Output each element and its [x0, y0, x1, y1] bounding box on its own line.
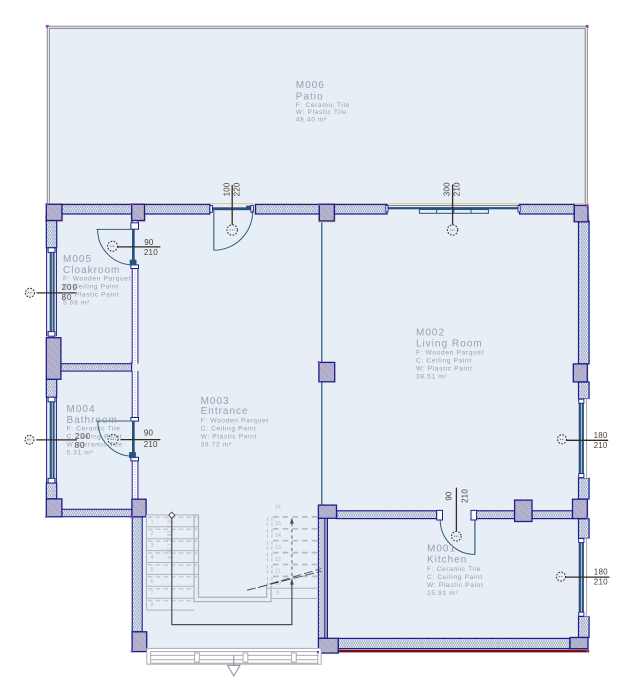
- svg-text:F: Wooden Parquet: F: Wooden Parquet: [416, 349, 484, 356]
- svg-text:M004: M004: [67, 404, 96, 415]
- svg-text:90: 90: [445, 491, 454, 501]
- svg-text:C: Ceiling Paint: C: Ceiling Paint: [427, 574, 483, 581]
- svg-text:11: 11: [275, 569, 281, 575]
- svg-text:210: 210: [461, 489, 470, 503]
- svg-text:16: 16: [275, 505, 281, 511]
- svg-text:W: Plastic Paint: W: Plastic Paint: [416, 365, 472, 372]
- svg-text:210: 210: [144, 248, 158, 257]
- svg-text:Living Room: Living Room: [416, 339, 483, 350]
- svg-text:15: 15: [275, 521, 281, 527]
- svg-text:W: Plastic Tile: W: Plastic Tile: [296, 109, 347, 116]
- svg-text:39.72 m²: 39.72 m²: [201, 442, 232, 449]
- svg-text:W: Plastic Paint: W: Plastic Paint: [201, 434, 257, 441]
- svg-text:90: 90: [144, 238, 154, 247]
- svg-text:C: Ceiling Paint: C: Ceiling Paint: [67, 433, 123, 440]
- svg-text:M001: M001: [427, 544, 456, 555]
- svg-text:Patio: Patio: [296, 92, 324, 103]
- svg-text:Entrance: Entrance: [201, 406, 249, 417]
- svg-text:F: Wooden Parquet: F: Wooden Parquet: [63, 276, 131, 283]
- svg-text:100: 100: [223, 182, 232, 196]
- svg-text:W: Plastic Paint: W: Plastic Paint: [427, 582, 483, 589]
- svg-text:F: Ceramic Tile: F: Ceramic Tile: [67, 425, 121, 432]
- svg-text:M005: M005: [63, 254, 92, 265]
- svg-text:M002: M002: [416, 328, 445, 339]
- svg-text:5.68 m²: 5.68 m²: [63, 300, 90, 307]
- svg-text:M006: M006: [296, 80, 325, 91]
- svg-text:210: 210: [594, 577, 608, 586]
- svg-text:12: 12: [275, 557, 281, 563]
- svg-text:C: Ceiling Paint: C: Ceiling Paint: [63, 284, 119, 291]
- svg-text:W: Ceramic Tile: W: Ceramic Tile: [67, 441, 123, 448]
- svg-text:2: 2: [151, 531, 154, 537]
- svg-text:90: 90: [144, 429, 154, 438]
- svg-text:7: 7: [151, 591, 154, 597]
- svg-text:4: 4: [151, 555, 154, 561]
- svg-text:180: 180: [594, 568, 608, 577]
- svg-text:15.91 m²: 15.91 m²: [427, 590, 458, 597]
- svg-text:F: Wooden Parquet: F: Wooden Parquet: [201, 418, 269, 425]
- svg-text:6: 6: [151, 579, 154, 585]
- svg-text:9: 9: [276, 590, 279, 596]
- svg-text:5: 5: [151, 567, 154, 573]
- svg-text:3: 3: [151, 543, 154, 549]
- svg-text:210: 210: [144, 440, 158, 449]
- svg-text:38.51 m²: 38.51 m²: [416, 373, 447, 380]
- svg-text:F: Ceramic Tile: F: Ceramic Tile: [296, 102, 350, 109]
- svg-text:210: 210: [453, 182, 462, 196]
- svg-text:8: 8: [151, 603, 154, 609]
- svg-text:1: 1: [151, 519, 154, 525]
- svg-text:220: 220: [232, 182, 241, 196]
- svg-text:Kitchen: Kitchen: [427, 555, 467, 566]
- svg-text:F: Ceramic Tile: F: Ceramic Tile: [427, 566, 481, 573]
- svg-text:180: 180: [594, 431, 608, 440]
- svg-text:48.40 m²: 48.40 m²: [296, 116, 327, 123]
- svg-text:Bathroom: Bathroom: [67, 415, 118, 426]
- svg-text:W: Plastic Paint: W: Plastic Paint: [63, 292, 119, 299]
- svg-text:Cloakroom: Cloakroom: [63, 265, 120, 276]
- svg-text:C: Ceiling Paint: C: Ceiling Paint: [201, 426, 257, 433]
- svg-text:210: 210: [594, 441, 608, 450]
- svg-text:C: Ceiling Paint: C: Ceiling Paint: [416, 357, 472, 364]
- svg-text:13: 13: [275, 545, 281, 551]
- svg-text:14: 14: [275, 533, 281, 539]
- svg-text:5.31 m²: 5.31 m²: [67, 449, 94, 456]
- svg-text:300: 300: [443, 182, 452, 196]
- svg-text:16 x 18,1 / 29,4: 16 x 18,1 / 29,4: [166, 517, 172, 559]
